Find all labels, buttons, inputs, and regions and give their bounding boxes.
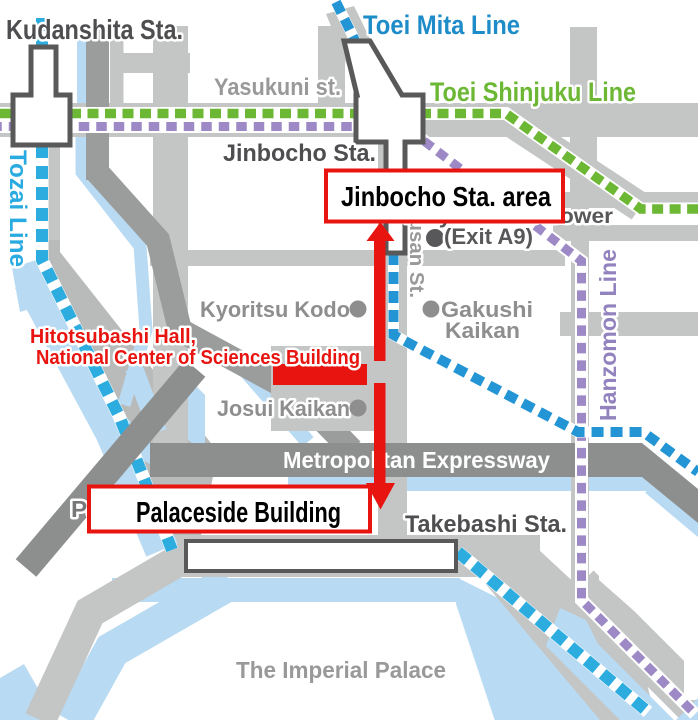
svg-text:Jinbocho Sta. area: Jinbocho Sta. area (341, 181, 551, 212)
svg-text:Yasukuni st.: Yasukuni st. (214, 74, 341, 101)
svg-text:Josui Kaikan: Josui Kaikan (217, 396, 350, 421)
svg-text:Takebashi Sta.: Takebashi Sta. (405, 511, 567, 538)
svg-text:Hanzomon Line: Hanzomon Line (595, 249, 621, 421)
svg-text:Kyoritsu Kodo: Kyoritsu Kodo (200, 297, 350, 322)
svg-text:Hitotsubashi Hall,: Hitotsubashi Hall, (30, 326, 196, 348)
svg-text:Toei Shinjuku Line: Toei Shinjuku Line (430, 77, 636, 107)
svg-text:Toei Mita Line: Toei Mita Line (363, 10, 520, 40)
svg-text:National Center of Sciences Bu: National Center of Sciences Building (36, 347, 360, 369)
svg-text:Kaikan: Kaikan (445, 318, 520, 343)
svg-text:Tozai Line: Tozai Line (4, 150, 31, 267)
svg-text:Metropolitan Expressway: Metropolitan Expressway (283, 447, 550, 473)
svg-text:Palaceside Building: Palaceside Building (136, 497, 341, 529)
svg-text:The Imperial Palace: The Imperial Palace (236, 657, 446, 683)
svg-text:Jinbocho Sta.: Jinbocho Sta. (223, 140, 376, 167)
svg-text:Kudanshita Sta.: Kudanshita Sta. (6, 14, 183, 45)
svg-text:(Exit A9): (Exit A9) (444, 224, 533, 249)
